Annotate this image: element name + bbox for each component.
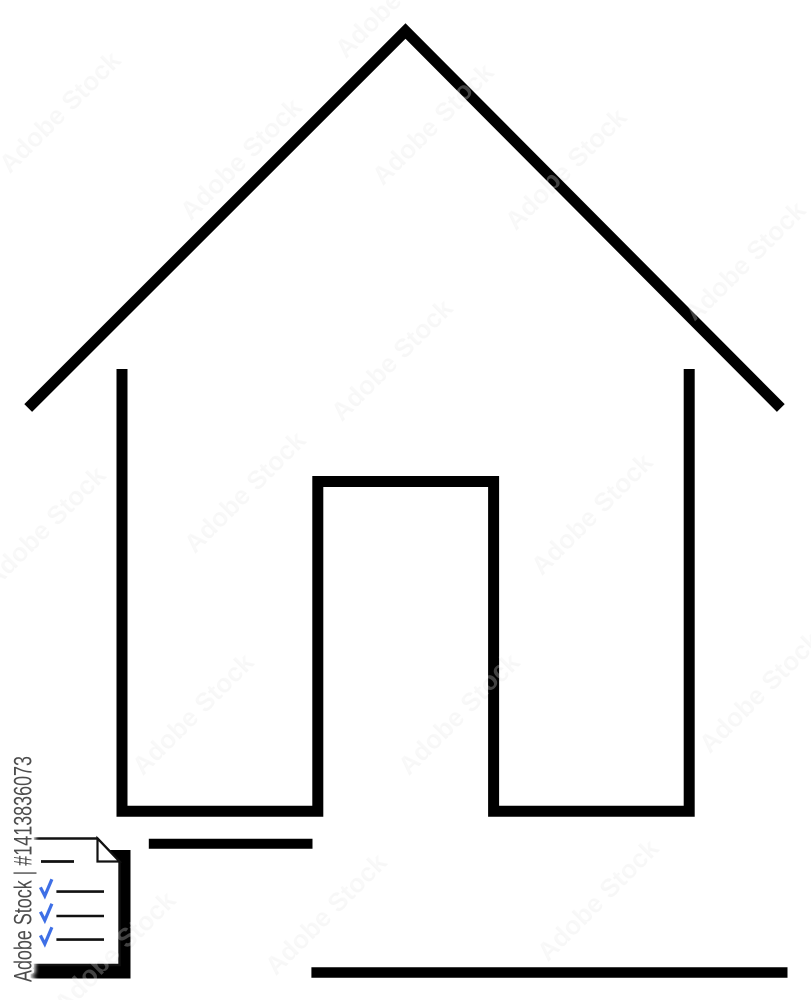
svg-text:Adobe Stock | #1413836073: Adobe Stock | #1413836073 <box>10 756 38 982</box>
